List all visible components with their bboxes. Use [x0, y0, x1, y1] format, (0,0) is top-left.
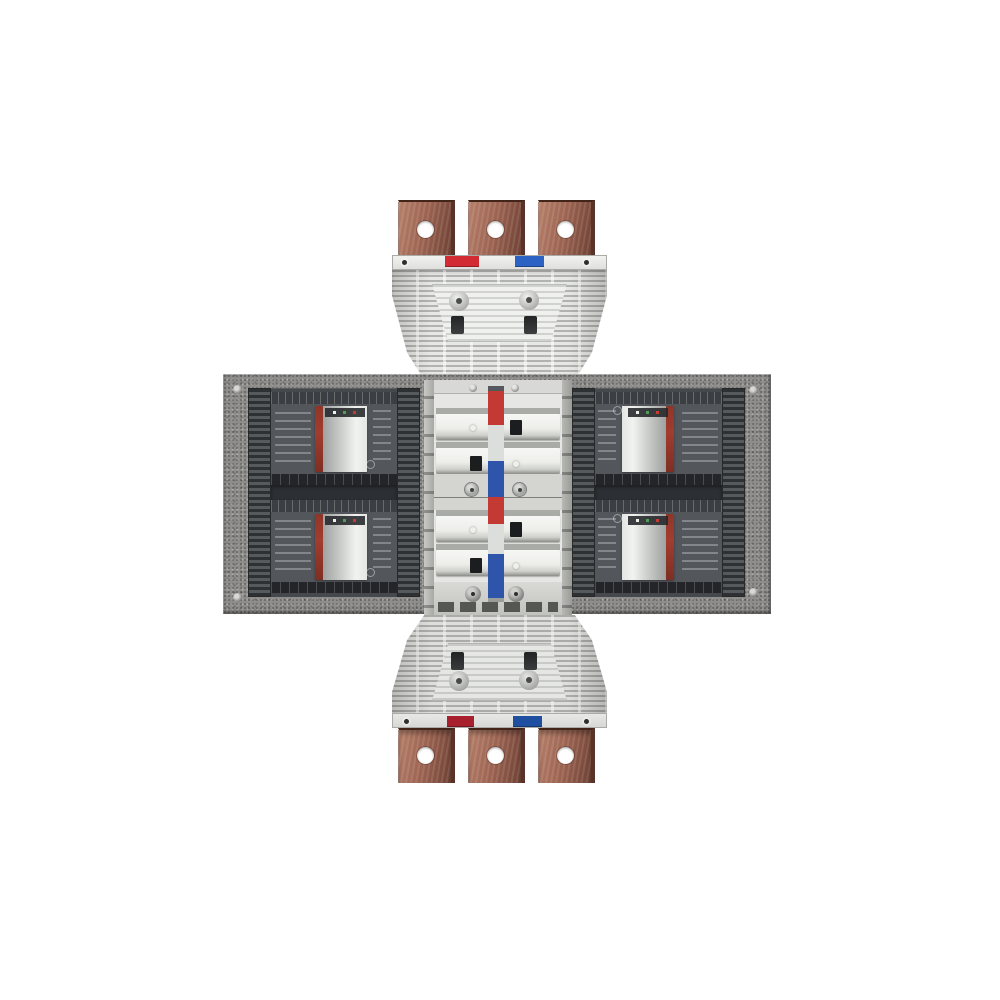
mounting-boss — [519, 670, 539, 690]
housing-slot — [451, 652, 464, 670]
module-divider — [271, 485, 397, 500]
phase-stripe-segment-red — [488, 497, 504, 524]
housing-slot — [451, 316, 464, 334]
circuit-breaker — [271, 392, 397, 485]
status-indicator-row — [325, 408, 365, 417]
breaker-module-right — [572, 388, 745, 597]
breaker-body — [595, 388, 722, 597]
screw-icon — [404, 719, 409, 724]
breaker-label-strip — [595, 392, 722, 404]
terminal-fins-outer — [722, 388, 745, 597]
screw-icon — [464, 482, 479, 497]
terminal-fins-inner — [397, 388, 420, 597]
screw-icon — [469, 384, 477, 392]
screw-icon — [508, 586, 524, 602]
indicator-dot — [513, 461, 519, 467]
phase-marker-red — [447, 716, 474, 727]
copper-terminal — [468, 200, 525, 257]
indicator-dot — [470, 527, 476, 533]
rotation-mark-icon — [613, 514, 622, 523]
phase-stripe-segment-end — [488, 598, 504, 602]
connector-slot — [470, 558, 482, 573]
circuit-breaker — [595, 500, 722, 593]
module-divider — [595, 485, 722, 500]
screw-icon — [584, 719, 589, 724]
copper-terminal — [538, 200, 595, 257]
rotation-mark-icon — [366, 568, 375, 577]
bottom-busbar-terminals — [392, 728, 607, 783]
terminal-fins-outer — [248, 388, 271, 597]
mounting-boss — [519, 290, 539, 310]
breaker-module-left — [248, 388, 420, 597]
bolt-hole — [557, 221, 574, 238]
connector-slot — [470, 456, 482, 471]
breaker-face — [595, 512, 722, 582]
copper-terminal — [398, 728, 455, 783]
circuit-breaker — [595, 392, 722, 485]
status-indicator-row — [325, 516, 365, 525]
breaker-face — [595, 404, 722, 474]
breaker-label-strip — [271, 500, 397, 512]
phase-stripe-segment-red — [488, 391, 504, 425]
plate-screw-icon — [749, 386, 758, 395]
phase-marking-stripe — [488, 386, 504, 602]
phase-marker-red — [445, 256, 479, 267]
breaker-body — [271, 388, 397, 597]
screw-icon — [465, 586, 481, 602]
housing-slot — [524, 316, 537, 334]
brand-red-label — [315, 514, 323, 580]
top-busbar-terminals — [392, 200, 607, 257]
connector-slot — [510, 522, 522, 537]
bottom-housing-edge-strip — [392, 713, 607, 728]
plate-screw-icon — [749, 588, 758, 597]
bolt-hole — [417, 221, 434, 238]
breaker-face — [271, 404, 397, 474]
etched-markings — [598, 518, 616, 572]
screw-icon — [584, 260, 589, 265]
breaker-terminal-band — [595, 582, 722, 593]
terminal-fins-inner — [572, 388, 595, 597]
mounting-boss — [449, 291, 469, 311]
rotation-mark-icon — [613, 406, 622, 415]
plate-screw-icon — [233, 385, 242, 394]
busbar-adapter-product-image — [0, 0, 1000, 1000]
breaker-toggle-window — [315, 406, 367, 472]
etched-markings — [598, 410, 616, 464]
etched-markings — [373, 410, 391, 464]
copper-terminal — [468, 728, 525, 783]
breaker-terminal-band — [595, 474, 722, 485]
phase-stripe-segment-white — [488, 425, 504, 461]
screw-icon — [512, 482, 527, 497]
bottom-vent-row — [438, 602, 558, 612]
phase-stripe-segment-blue — [488, 461, 504, 497]
status-indicator-row — [628, 516, 668, 525]
breaker-label-strip — [271, 392, 397, 404]
bolt-hole — [487, 747, 504, 764]
bolt-hole — [417, 747, 434, 764]
breaker-toggle-window — [622, 514, 674, 580]
rotation-mark-icon — [366, 460, 375, 469]
etched-markings — [275, 520, 311, 572]
breaker-terminal-band — [271, 474, 397, 485]
indicator-dot — [470, 425, 476, 431]
column-rail-left — [424, 380, 434, 615]
screw-icon — [402, 260, 407, 265]
connector-slot — [510, 420, 522, 435]
indicator-dot — [513, 563, 519, 569]
copper-terminal — [538, 728, 595, 783]
breaker-terminal-band — [271, 582, 397, 593]
phase-marker-blue — [515, 256, 544, 267]
status-indicator-row — [628, 408, 668, 417]
etched-markings — [682, 412, 718, 464]
phase-stripe-segment-white — [488, 524, 504, 554]
bottom-adapter-housing — [392, 615, 607, 715]
mounting-boss — [449, 671, 469, 691]
copper-terminal — [398, 200, 455, 257]
breaker-toggle-window — [622, 406, 674, 472]
top-adapter-housing — [392, 270, 607, 380]
phase-stripe-segment-blue — [488, 554, 504, 598]
breaker-label-strip — [595, 500, 722, 512]
housing-slot — [524, 652, 537, 670]
plate-screw-icon — [233, 593, 242, 602]
breaker-toggle-window — [315, 514, 367, 580]
circuit-breaker — [271, 500, 397, 593]
column-rail-right — [562, 380, 572, 615]
bolt-hole — [557, 747, 574, 764]
etched-markings — [275, 412, 311, 464]
screw-icon — [511, 384, 519, 392]
brand-red-label — [315, 406, 323, 472]
breaker-face — [271, 512, 397, 582]
center-busbar-column — [424, 380, 572, 615]
bolt-hole — [487, 221, 504, 238]
top-housing-edge-strip — [392, 255, 607, 270]
etched-markings — [682, 520, 718, 572]
phase-marker-blue — [513, 716, 542, 727]
etched-markings — [373, 518, 391, 572]
